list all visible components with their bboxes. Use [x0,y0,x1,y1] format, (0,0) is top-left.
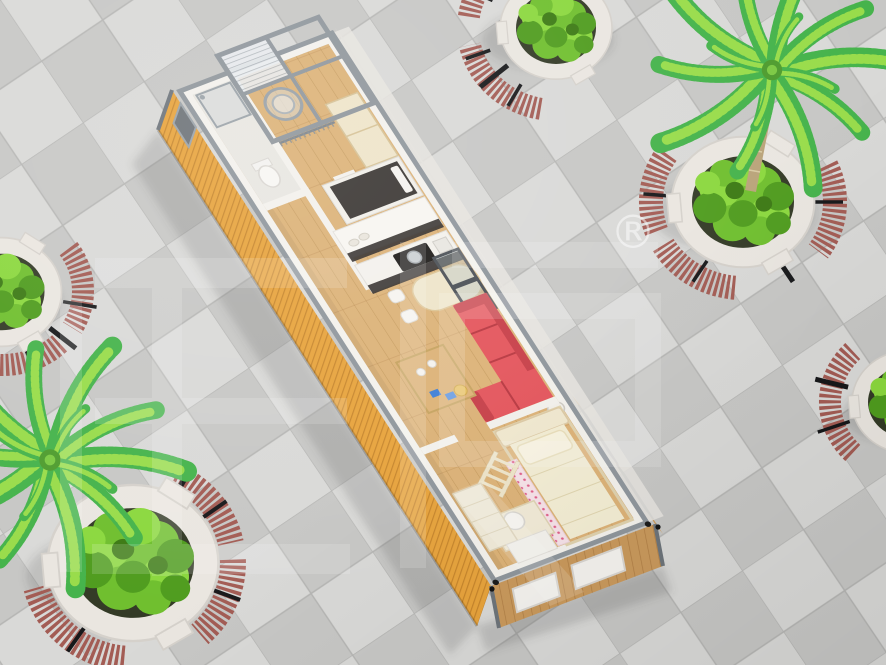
render-stage: ® [0,0,886,665]
vignette-overlay [0,0,886,665]
scene-render: ® [0,0,886,665]
